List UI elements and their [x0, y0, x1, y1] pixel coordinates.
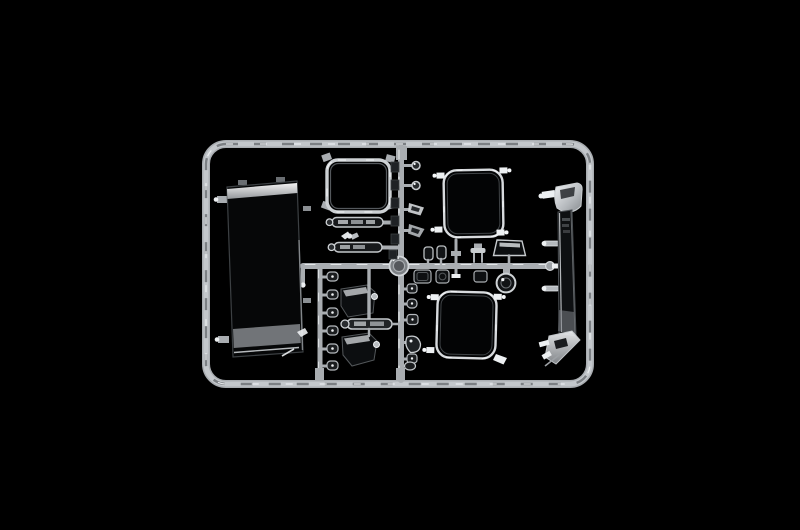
mirror-housing-upper	[341, 285, 378, 317]
photo-canvas	[0, 0, 800, 530]
rear-window-frame-part	[321, 152, 396, 212]
lamp-lens-2	[436, 270, 449, 283]
lamp-lens-3	[474, 271, 487, 282]
sprue-photo	[0, 0, 800, 530]
lamp-lens-1	[414, 270, 431, 283]
bottom-gate	[396, 368, 405, 381]
